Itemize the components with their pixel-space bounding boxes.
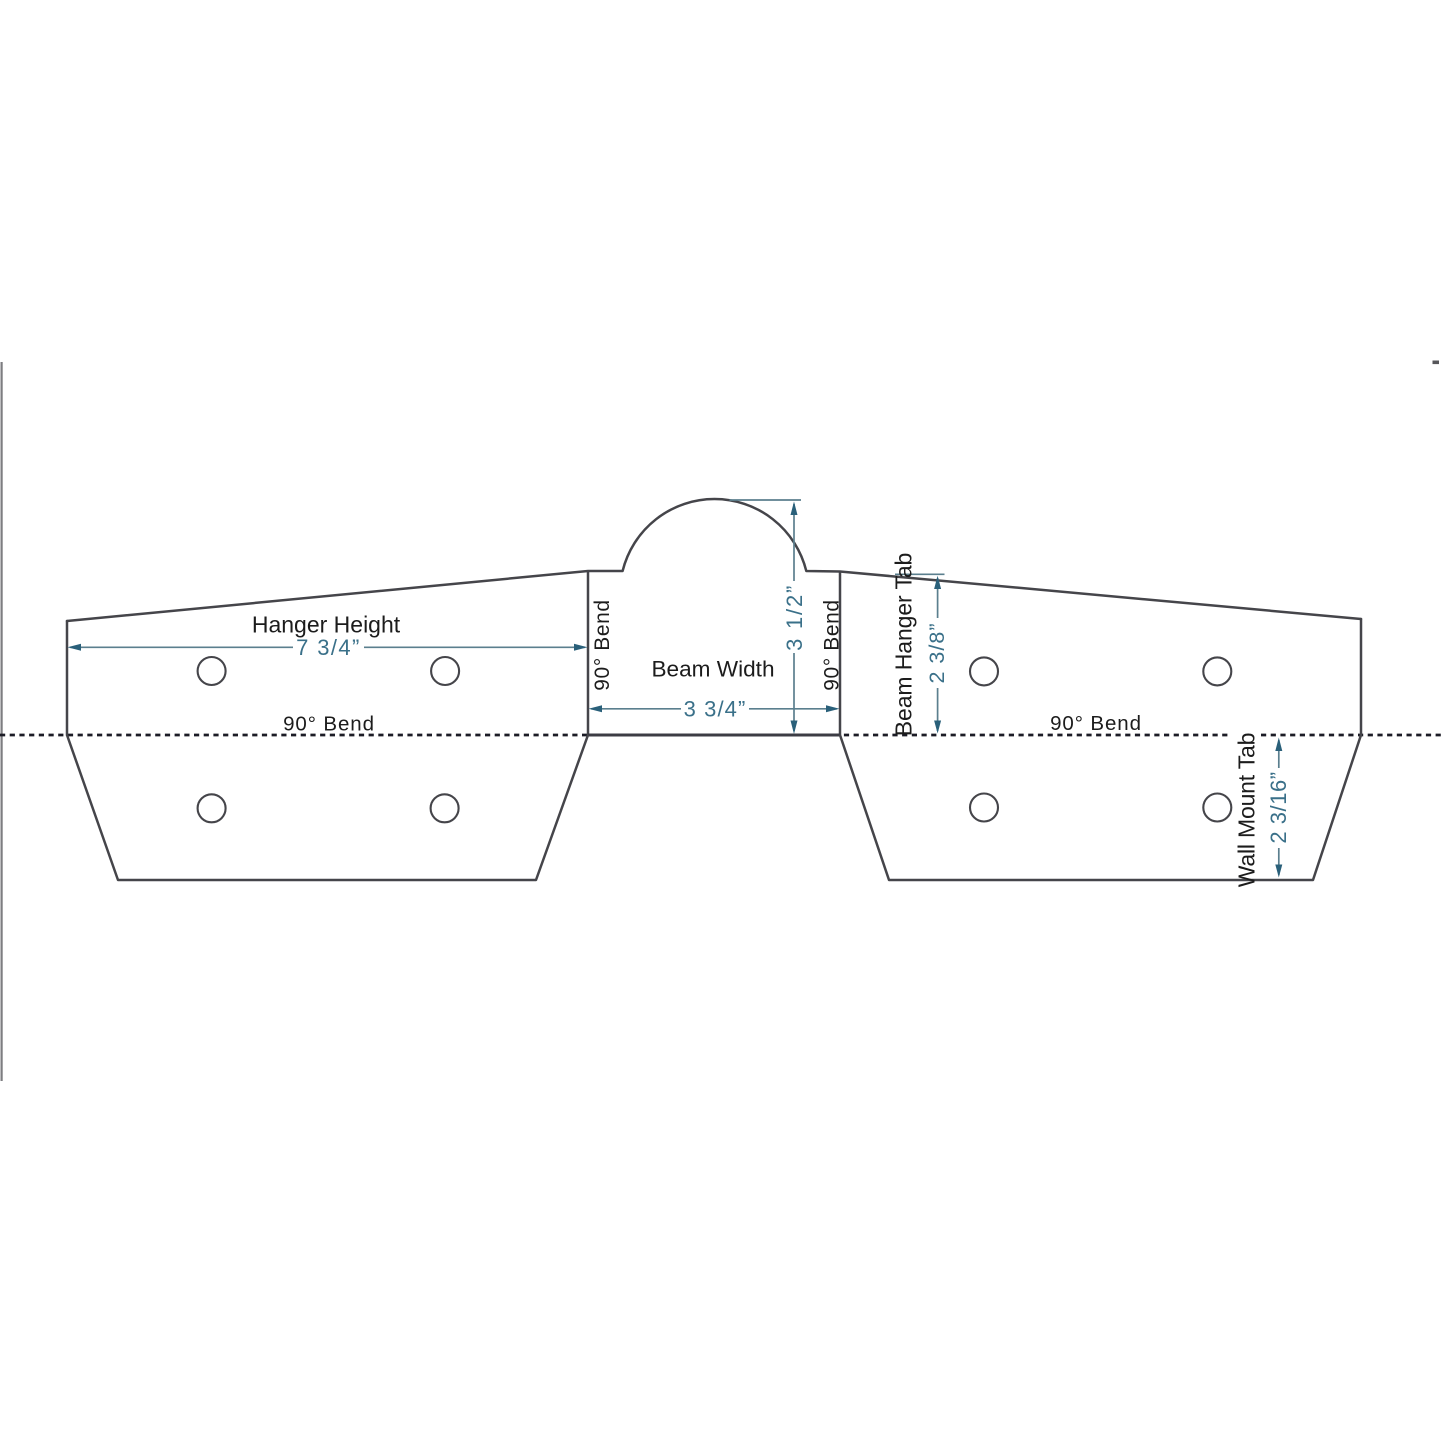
svg-text:Wall Mount Tab: Wall Mount Tab [1234,733,1260,887]
svg-text:3 3/4”: 3 3/4” [684,697,747,722]
svg-text:Beam Hanger Tab: Beam Hanger Tab [891,553,917,736]
svg-text:7 3/4”: 7 3/4” [296,635,361,660]
svg-text:90° Bend: 90° Bend [591,599,614,690]
svg-text:2 3/8”: 2 3/8” [925,623,949,684]
svg-text:2 3/16”: 2 3/16” [1266,771,1291,843]
svg-text:Beam Width: Beam Width [651,657,774,682]
svg-text:Hanger Height: Hanger Height [252,612,401,638]
svg-text:90° Bend: 90° Bend [1050,712,1142,735]
svg-text:90° Bend: 90° Bend [821,599,844,690]
svg-text:90° Bend: 90° Bend [283,713,375,736]
svg-text:3 1/2”: 3 1/2” [782,584,807,651]
